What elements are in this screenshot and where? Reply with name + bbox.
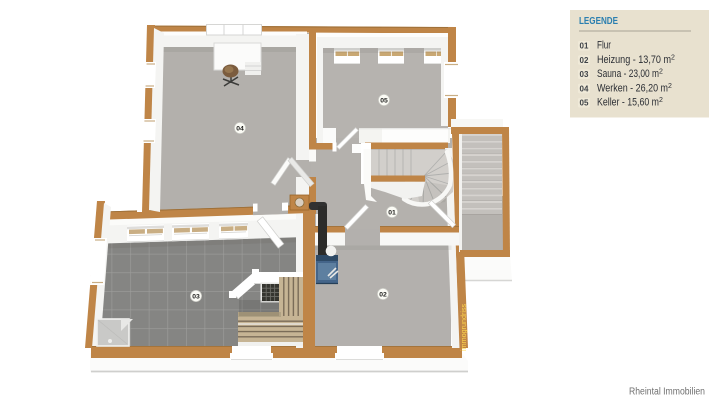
svg-text:03: 03 [192,293,200,300]
svg-text:immogrundriss: immogrundriss [459,303,468,351]
svg-text:03: 03 [580,70,589,79]
svg-text:Werken - 26,20 m2: Werken - 26,20 m2 [597,82,672,94]
svg-text:Flur: Flur [597,40,611,52]
svg-text:01: 01 [388,209,396,216]
svg-text:LEGENDE: LEGENDE [579,15,618,27]
svg-text:Rheintal Immobilien: Rheintal Immobilien [629,387,705,398]
svg-text:Heizung - 13,70 m2: Heizung - 13,70 m2 [597,54,675,66]
svg-text:Sauna - 23,00 m2: Sauna - 23,00 m2 [597,68,663,80]
svg-text:05: 05 [380,97,388,104]
svg-text:05: 05 [580,99,589,108]
svg-text:01: 01 [580,42,589,51]
svg-text:Keller - 15,60 m2: Keller - 15,60 m2 [597,97,663,109]
svg-text:02: 02 [580,56,589,65]
svg-text:04: 04 [236,125,244,132]
svg-text:04: 04 [580,84,589,93]
svg-text:02: 02 [379,291,387,298]
